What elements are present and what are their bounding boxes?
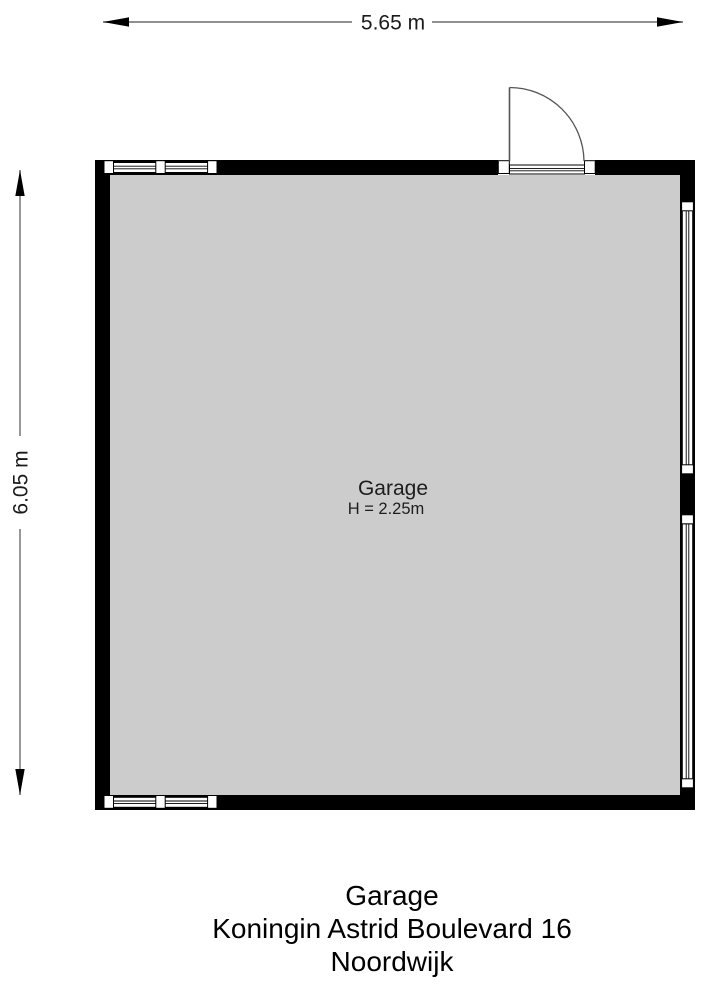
caption-address: Koningin Astrid Boulevard 16 (212, 913, 572, 944)
top-wall-entry-door (498, 88, 595, 176)
arrow-right-icon (657, 17, 683, 26)
window-jamb (682, 515, 694, 524)
window-pane (165, 797, 209, 807)
door-jamb (585, 161, 596, 174)
window-jamb (104, 161, 114, 174)
door-jamb (498, 161, 509, 174)
window-pane (682, 211, 692, 466)
top-wall-window (104, 161, 217, 174)
window-jamb (682, 465, 694, 474)
right-wall-window-upper (682, 202, 694, 474)
room-height-label: H = 2.25m (348, 500, 425, 518)
window-pane (113, 797, 158, 807)
window-jamb (208, 796, 217, 809)
door-threshold (510, 165, 585, 174)
window-jamb (104, 796, 114, 809)
floorplan-page: 5.65 m 6.05 m (0, 0, 707, 1000)
floorplan-drawing: 5.65 m 6.05 m (0, 0, 707, 1000)
bottom-wall-window (104, 796, 217, 809)
window-pane (682, 524, 692, 779)
height-dimension-label: 6.05 m (10, 450, 33, 514)
window-pane (113, 163, 158, 173)
arrow-down-icon (15, 769, 24, 795)
height-dimension: 6.05 m (7, 170, 33, 795)
arrow-left-icon (103, 17, 129, 26)
window-jamb (208, 161, 217, 174)
caption: Garage Koningin Astrid Boulevard 16 Noor… (212, 880, 572, 977)
arrow-up-icon (15, 170, 24, 196)
width-dimension-label: 5.65 m (361, 12, 425, 35)
right-wall-window-lower (682, 515, 694, 788)
window-jamb (682, 202, 694, 211)
door-swing-arc (510, 88, 585, 162)
width-dimension: 5.65 m (103, 7, 683, 37)
window-pane (165, 163, 209, 173)
window-jamb (156, 161, 165, 174)
caption-city: Noordwijk (331, 946, 455, 977)
room-name-label: Garage (358, 477, 428, 500)
window-jamb (156, 796, 165, 809)
caption-title: Garage (345, 880, 438, 911)
window-jamb (682, 779, 694, 788)
